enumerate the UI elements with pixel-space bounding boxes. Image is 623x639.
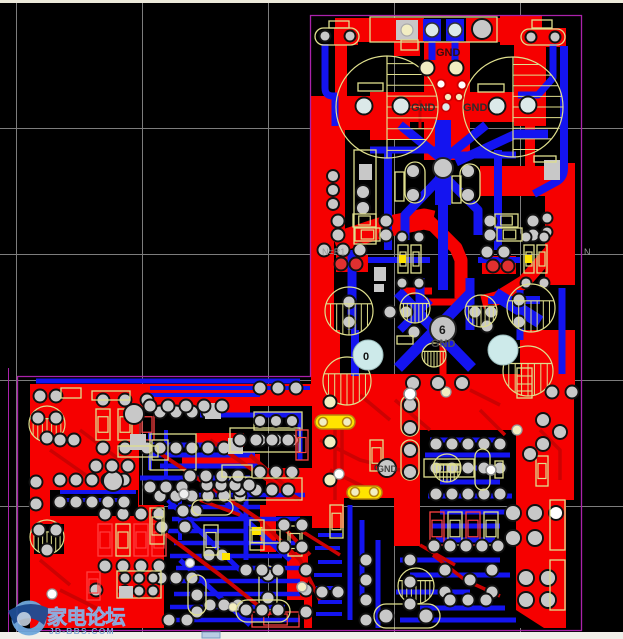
svg-text:6: 6 [439, 323, 446, 337]
svg-text:0: 0 [363, 351, 369, 363]
svg-text:N: N [584, 247, 591, 257]
svg-text:GND: GND [436, 47, 461, 59]
svg-text:GND: GND [463, 102, 488, 114]
svg-text:JD-BBS.COM: JD-BBS.COM [49, 626, 115, 636]
svg-text:GND: GND [431, 338, 456, 350]
svg-text:GND: GND [377, 464, 398, 474]
svg-text:GND: GND [411, 102, 436, 114]
svg-text:N=R1: N=R1 [322, 247, 345, 257]
